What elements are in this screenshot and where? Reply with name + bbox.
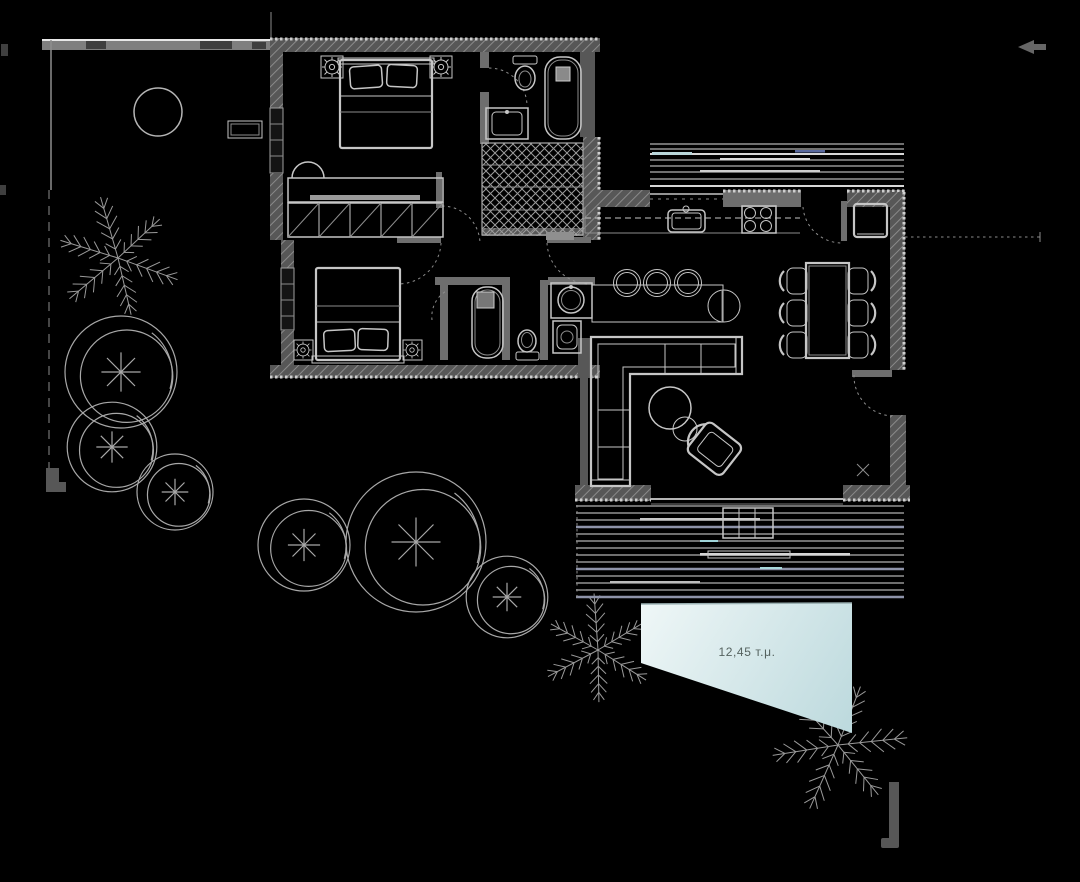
dining-table bbox=[806, 263, 849, 358]
toilet bbox=[513, 56, 537, 90]
door-swing-icon bbox=[398, 243, 441, 284]
wall-mark bbox=[0, 185, 6, 195]
threshold bbox=[546, 232, 574, 240]
floor-plan-drawing: 12,45 т.μ. bbox=[0, 0, 1080, 882]
wall-kitchen-top-2 bbox=[723, 190, 801, 207]
exterior-wall-left bbox=[270, 52, 283, 108]
tree-icon bbox=[65, 316, 177, 428]
bathtub bbox=[545, 57, 581, 139]
refrigerator bbox=[854, 204, 887, 237]
accent-segment bbox=[795, 150, 825, 153]
pool-water bbox=[641, 603, 852, 733]
double-bed bbox=[338, 58, 434, 148]
accent-segment bbox=[652, 152, 692, 155]
bar-stool bbox=[644, 270, 671, 297]
wall-right-lower bbox=[890, 415, 906, 487]
floor-plan-canvas: 12,45 т.μ. bbox=[0, 0, 1080, 882]
wall-bathroom2-left bbox=[440, 285, 448, 360]
armchair bbox=[680, 416, 743, 477]
plank-highlight bbox=[700, 540, 718, 542]
tree-icon bbox=[258, 499, 350, 591]
dining-chair bbox=[848, 268, 875, 294]
dining-table-inner bbox=[809, 266, 846, 355]
table-lamp-icon bbox=[322, 57, 342, 77]
sliding-glass-door bbox=[651, 499, 843, 504]
door-leaf-bedroom1 bbox=[397, 237, 441, 243]
bathtub bbox=[472, 287, 503, 358]
shower-faucet bbox=[556, 67, 570, 81]
door-swing-icon bbox=[489, 68, 527, 106]
wall-kitchen-top-1 bbox=[583, 190, 650, 207]
bedroom-2 bbox=[294, 268, 422, 363]
door-swing-icon bbox=[854, 375, 892, 416]
pillow bbox=[358, 328, 389, 350]
planter-circle bbox=[134, 88, 182, 136]
tiled-shower-floor bbox=[482, 143, 583, 240]
double-bed bbox=[312, 268, 404, 363]
boundary-wall-footing bbox=[881, 838, 899, 848]
courtyard-top-wall bbox=[42, 40, 270, 50]
wall-bathroom2-top bbox=[435, 277, 510, 285]
tree-icon bbox=[346, 472, 486, 612]
bathroom-2 bbox=[472, 283, 592, 360]
wall-segment bbox=[252, 42, 266, 49]
floor-drain-icon bbox=[857, 464, 869, 476]
round-table bbox=[708, 290, 740, 322]
bar-stool bbox=[614, 270, 641, 297]
toilet bbox=[516, 330, 539, 360]
bar-stool bbox=[675, 270, 702, 297]
tree-icon bbox=[466, 556, 548, 638]
accent-segment bbox=[720, 158, 810, 160]
dining-chair bbox=[780, 268, 807, 294]
wall-segment bbox=[86, 41, 106, 49]
palm-icon bbox=[47, 186, 194, 327]
deck-terrace bbox=[576, 505, 904, 598]
garden-bench bbox=[228, 121, 262, 138]
dining-chair bbox=[848, 332, 875, 358]
plank-highlight bbox=[760, 567, 782, 569]
wall-bathroom1-partition bbox=[480, 52, 489, 68]
dining-chair bbox=[848, 300, 875, 326]
sink-vanity bbox=[486, 108, 528, 139]
bench-dresser bbox=[288, 162, 443, 202]
pool-area-label: 12,45 т.μ. bbox=[718, 645, 775, 659]
tree-icon bbox=[137, 454, 213, 530]
wardrobe bbox=[288, 203, 443, 237]
doors bbox=[397, 68, 892, 416]
plank-highlight bbox=[640, 518, 760, 521]
wall-segment bbox=[200, 41, 232, 49]
dining-chair bbox=[780, 332, 807, 358]
bathroom-1 bbox=[482, 56, 583, 240]
pillow bbox=[386, 64, 417, 88]
wall-mark bbox=[1, 44, 8, 56]
wall-wc-top bbox=[548, 277, 595, 285]
north-arrow-icon bbox=[1018, 40, 1046, 54]
wall-bathroom1-right-lower bbox=[583, 137, 600, 240]
plank-highlight bbox=[700, 553, 850, 556]
wall-bathroom1-right bbox=[580, 52, 595, 137]
pool-edge bbox=[641, 603, 852, 604]
dining-area bbox=[780, 263, 875, 358]
living-room bbox=[591, 337, 869, 486]
table-lamp-icon bbox=[404, 342, 421, 359]
shower-faucet bbox=[477, 292, 494, 308]
window-left-bedroom1 bbox=[270, 108, 283, 173]
plank-highlight bbox=[610, 581, 700, 583]
pergola-louvers bbox=[650, 144, 904, 186]
boundary-corner-footing bbox=[46, 468, 66, 492]
kitchen-sink bbox=[668, 206, 705, 232]
door-leaf-kitchen bbox=[841, 201, 847, 241]
pool: 12,45 т.μ. bbox=[641, 603, 852, 733]
washing-machine bbox=[553, 321, 581, 353]
boundary-wall-segment bbox=[889, 782, 899, 840]
sectional-sofa bbox=[591, 337, 742, 486]
pillow bbox=[323, 329, 355, 352]
coffee-table bbox=[649, 387, 691, 429]
dining-chair bbox=[780, 300, 807, 326]
wall-living-left bbox=[580, 375, 588, 485]
wall-wc-right bbox=[540, 280, 548, 360]
sink-vanity bbox=[551, 283, 592, 318]
pillow bbox=[349, 65, 382, 89]
door-swing-icon bbox=[442, 206, 480, 244]
table-lamp-icon bbox=[295, 342, 312, 359]
exterior-wall-left bbox=[270, 173, 283, 240]
island-bar bbox=[592, 270, 740, 323]
exterior-wall-left bbox=[281, 240, 294, 268]
table-lamp-icon bbox=[431, 57, 451, 77]
bedroom-1 bbox=[288, 56, 452, 237]
door-leaf-living bbox=[852, 370, 892, 377]
wall-bathroom1-partition bbox=[480, 92, 489, 144]
window-kitchen bbox=[650, 194, 723, 199]
stove-cooktop bbox=[742, 206, 776, 233]
tree-icon bbox=[67, 402, 157, 492]
accent-segment bbox=[700, 170, 820, 172]
door-swing-icon bbox=[803, 207, 841, 243]
window-left-bedroom2 bbox=[281, 268, 294, 330]
